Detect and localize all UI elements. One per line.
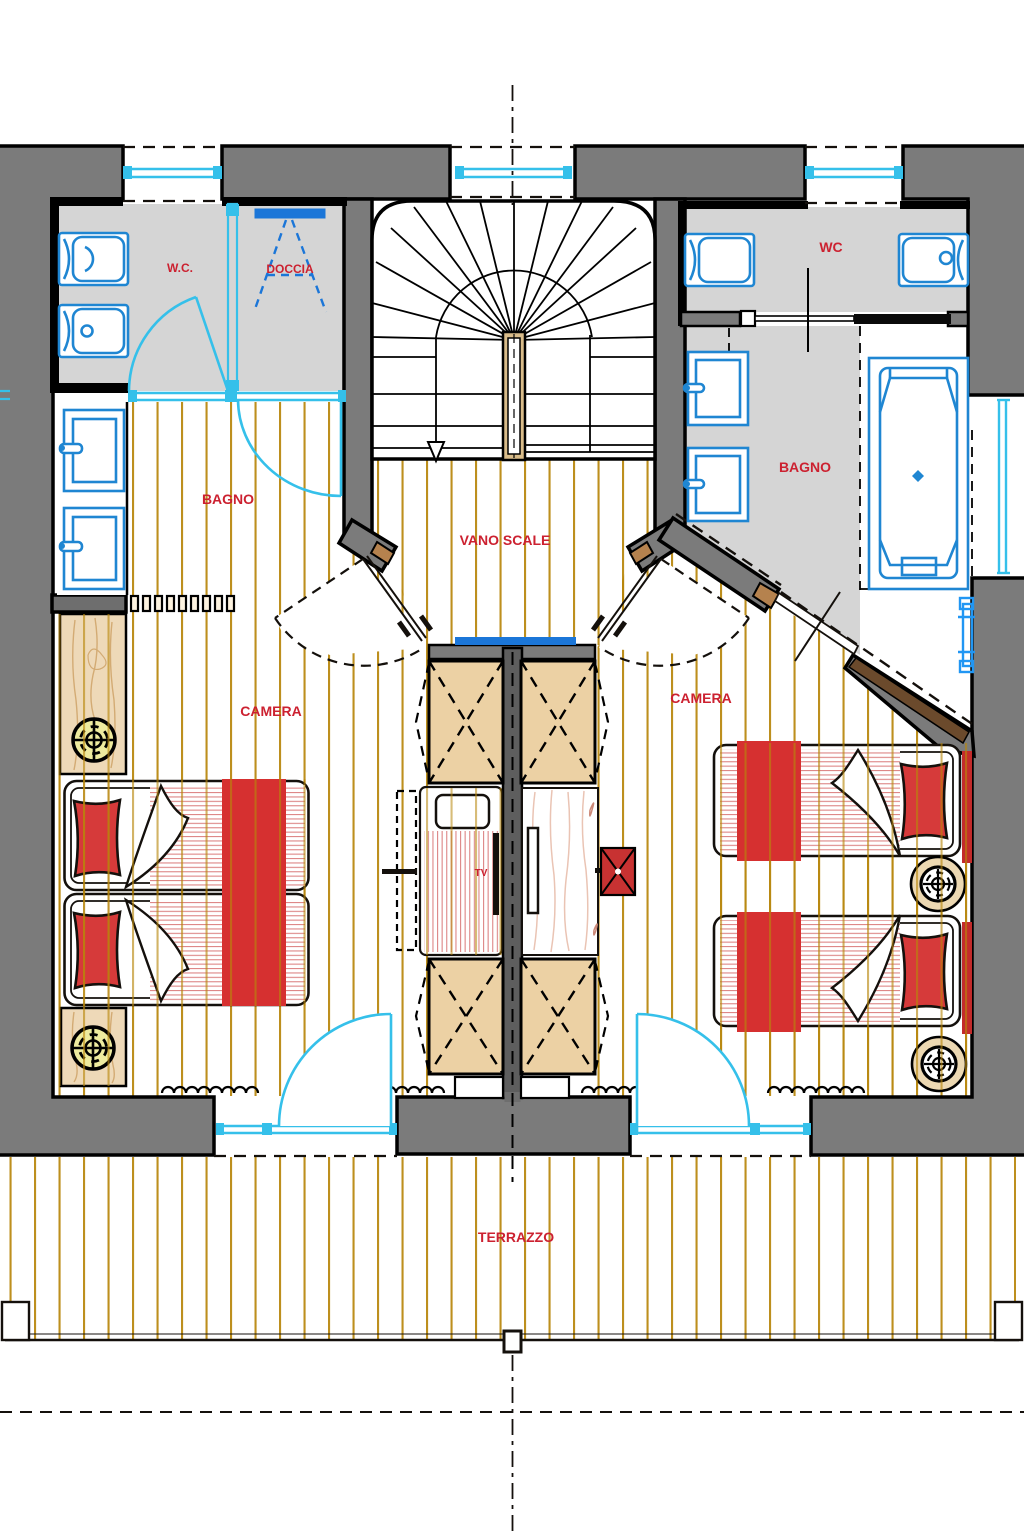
- svg-text:CAMERA: CAMERA: [240, 703, 301, 719]
- svg-text:TERRAZZO: TERRAZZO: [478, 1229, 554, 1245]
- svg-text:DOCCIA: DOCCIA: [266, 262, 314, 276]
- svg-text:BAGNO: BAGNO: [202, 491, 254, 507]
- svg-text:W.C.: W.C.: [167, 261, 193, 275]
- svg-text:BAGNO: BAGNO: [779, 459, 831, 475]
- svg-text:WC: WC: [819, 239, 842, 255]
- svg-text:CAMERA: CAMERA: [670, 690, 731, 706]
- svg-text:TV: TV: [475, 868, 488, 879]
- svg-text:VANO SCALE: VANO SCALE: [460, 532, 551, 548]
